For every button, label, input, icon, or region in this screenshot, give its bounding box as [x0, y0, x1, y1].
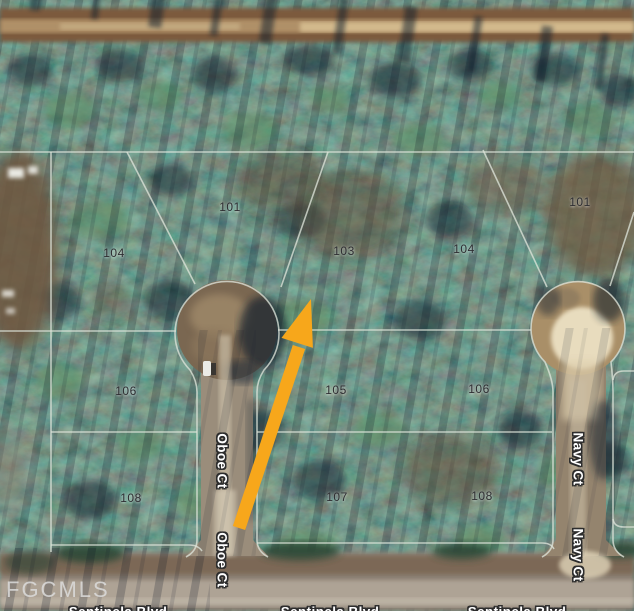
street-label-oboe-ct: Oboe Ct — [215, 433, 230, 488]
lot-number-label: 107 — [326, 490, 348, 504]
lot-number-label: 108 — [120, 491, 142, 505]
lot-number-label: 106 — [468, 382, 490, 396]
lot-number-label: 103 — [333, 244, 355, 258]
satellite-map-image[interactable]: 101 104 103 104 101 106 105 106 108 107 … — [0, 0, 634, 611]
lot-number-label: 101 — [569, 195, 591, 209]
map-graphics — [0, 0, 634, 611]
lot-number-label: 104 — [453, 242, 475, 256]
lot-number-label: 105 — [325, 383, 347, 397]
parked-vehicle — [203, 361, 216, 376]
street-label-navy-ct: Navy Ct — [571, 432, 586, 485]
street-label-sentinela-blvd: Sentinela Blvd — [69, 605, 168, 611]
fgcmls-watermark: FGCMLS — [6, 577, 110, 603]
street-label-sentinela-blvd: Sentinela Blvd — [281, 605, 380, 611]
street-label-sentinela-blvd: Sentinela Blvd — [468, 605, 567, 611]
street-label-oboe-ct: Oboe Ct — [215, 532, 230, 587]
street-label-navy-ct: Navy Ct — [571, 528, 586, 581]
lot-number-label: 106 — [115, 384, 137, 398]
lot-number-label: 101 — [219, 200, 241, 214]
lot-number-label: 104 — [103, 246, 125, 260]
lot-number-label: 108 — [471, 489, 493, 503]
